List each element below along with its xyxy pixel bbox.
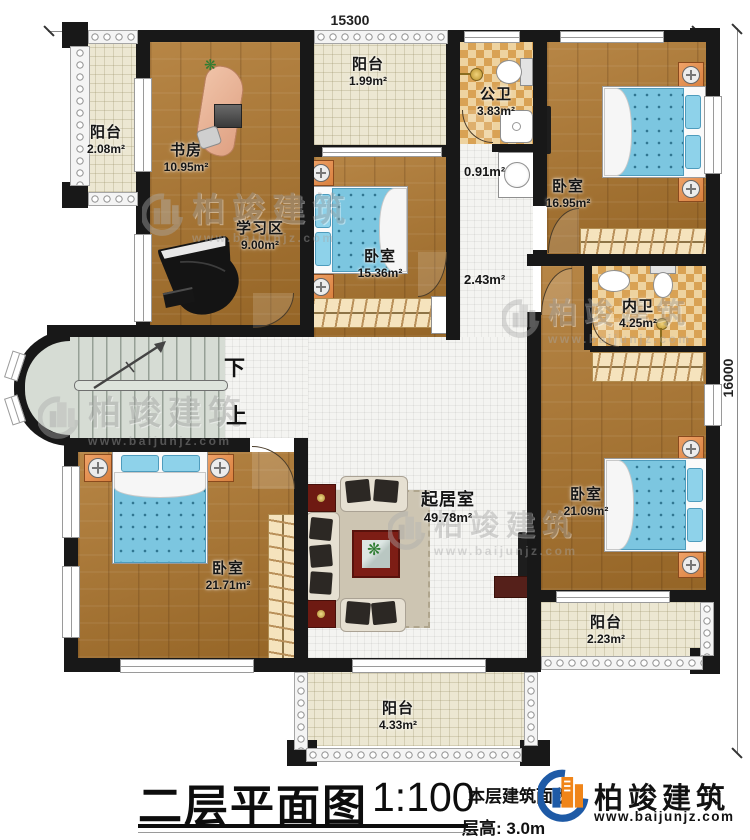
wall-lamp-icon — [470, 68, 483, 81]
room-label-bedroom-right: 卧室21.09m² — [536, 486, 636, 518]
window — [352, 659, 486, 673]
room-label-study: 书房10.95m² — [138, 142, 234, 174]
balcony-railing — [306, 748, 522, 762]
wall — [300, 42, 314, 337]
wall — [136, 30, 314, 42]
drawing-scale: 1:100 — [372, 774, 475, 821]
floorplan-canvas: 15300 16000 下 上 — [0, 0, 750, 840]
balcony-railing — [314, 30, 448, 44]
pillow — [687, 468, 703, 502]
lamp-icon — [682, 556, 700, 574]
bed — [112, 450, 208, 564]
dimension-line-right — [737, 28, 738, 754]
nightstand — [678, 62, 704, 88]
wardrobe — [580, 228, 708, 256]
sofa-cushion — [309, 544, 333, 568]
wall — [584, 266, 592, 350]
nightstand — [678, 176, 704, 202]
wall — [590, 346, 706, 352]
lamp-stem — [660, 328, 662, 348]
lamp-icon — [682, 66, 700, 84]
side-table — [306, 484, 336, 512]
sofa-cushion — [309, 517, 333, 541]
floor-balcony-left — [86, 44, 136, 192]
pillow — [162, 455, 200, 472]
sink-icon — [598, 270, 630, 292]
corner-column — [690, 28, 720, 42]
wall — [527, 312, 541, 590]
room-label-public-bath: 公卫3.83m² — [458, 86, 534, 118]
balcony-railing — [541, 656, 703, 670]
window — [120, 659, 254, 673]
room-label-balcony-left: 阳台2.08m² — [70, 124, 142, 156]
floor-height-note: 层高: 3.0m — [462, 814, 545, 839]
room-label-hallway: 2.43m² — [464, 272, 505, 287]
stair-up-label: 上 — [226, 400, 247, 430]
pillow — [687, 508, 703, 542]
balcony-railing — [88, 30, 138, 44]
dimension-right-label: 16000 — [720, 348, 736, 408]
stair-bay-window — [14, 330, 70, 446]
sofa-cushion — [309, 571, 332, 594]
monitor-icon — [214, 104, 242, 128]
balcony-railing — [524, 672, 538, 746]
table-lamp-icon — [317, 494, 325, 502]
room-label-bedroom-bottomleft: 卧室21.71m² — [178, 560, 278, 592]
balcony-railing — [294, 672, 308, 750]
room-label-balcony-right: 阳台2.23m² — [568, 614, 644, 646]
tv-cabinet — [494, 576, 529, 598]
brand-website: www.baijunjz.com — [594, 809, 735, 824]
balcony-railing — [88, 192, 138, 206]
balcony-railing — [700, 602, 714, 656]
room-label-wash-area: 0.91m² — [464, 164, 505, 179]
lamp-icon — [682, 440, 700, 458]
blanket — [114, 472, 206, 498]
table-lamp-icon — [317, 610, 325, 618]
wall — [527, 254, 720, 266]
title-underline-thin — [138, 832, 474, 833]
title-underline-thick — [138, 824, 468, 828]
lamp-icon — [682, 180, 700, 198]
stair-down-label: 下 — [224, 352, 245, 382]
lamp-icon — [88, 458, 108, 478]
wardrobe — [306, 298, 448, 328]
toilet-icon — [653, 272, 673, 298]
brand-logo-icon — [538, 766, 592, 824]
nightstand — [206, 454, 234, 482]
nightstand — [84, 454, 112, 482]
coffee-table: ❋ — [352, 530, 400, 578]
pillow — [315, 194, 331, 228]
room-label-study-area: 学习区9.00m² — [212, 220, 308, 252]
room-label-balcony-bottom: 阳台4.33m² — [360, 700, 436, 732]
wall — [64, 438, 250, 452]
pillow — [685, 135, 701, 169]
pillow — [121, 455, 159, 472]
side-table — [306, 600, 336, 628]
corner-column — [62, 22, 88, 48]
room-label-living-room: 起居室49.78m² — [396, 490, 500, 526]
bed — [602, 86, 706, 178]
plant-icon: ❋ — [204, 56, 217, 74]
wall — [492, 144, 533, 152]
lamp-icon — [312, 164, 330, 182]
stair-direction-arrow — [88, 334, 180, 396]
shower-drain-icon — [512, 122, 521, 131]
toilet-icon — [496, 60, 522, 84]
room-label-inner-bath: 内卫4.25m² — [600, 298, 676, 330]
nightstand — [678, 552, 704, 578]
sofa-cushion — [345, 479, 371, 503]
sofa-cushion — [371, 601, 397, 625]
window — [464, 31, 520, 43]
lamp-icon — [312, 278, 330, 296]
wall — [294, 438, 308, 672]
pillow — [315, 232, 331, 266]
balcony-door — [556, 591, 670, 603]
lamp-icon — [210, 458, 230, 478]
wall — [446, 30, 460, 340]
wardrobe — [592, 352, 704, 382]
plant-icon: ❋ — [367, 540, 381, 560]
balcony-railing — [70, 46, 90, 186]
sofa-cushion — [345, 601, 371, 625]
window — [704, 96, 722, 174]
window — [134, 234, 152, 322]
blanket — [604, 88, 632, 176]
dimension-top-label: 15300 — [318, 12, 382, 28]
window — [560, 31, 664, 43]
window — [322, 147, 442, 157]
window — [62, 466, 80, 538]
window — [62, 566, 80, 638]
room-label-bedroom-topright: 卧室16.95m² — [518, 178, 618, 210]
pillow — [685, 95, 701, 129]
room-label-bedroom-mid: 卧室15.36m² — [330, 248, 430, 280]
room-label-balcony-top: 阳台1.99m² — [330, 56, 406, 88]
